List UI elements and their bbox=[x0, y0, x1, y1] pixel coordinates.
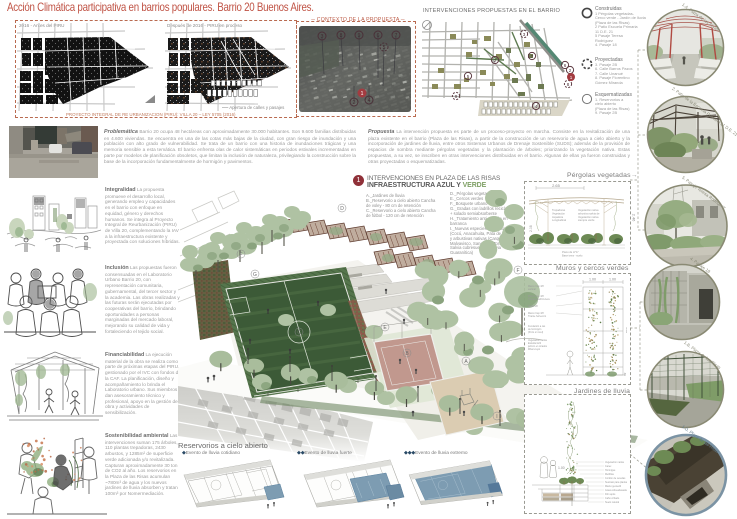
svg-text:C: C bbox=[297, 330, 301, 336]
svg-text:Vegetación nativa: Vegetación nativa bbox=[578, 215, 599, 219]
svg-text:arbustiva salvia de: arbustiva salvia de bbox=[578, 211, 600, 215]
svg-text:siempre verde: siempre verde bbox=[578, 218, 595, 222]
svg-text:6: 6 bbox=[377, 33, 380, 39]
svg-text:4: 4 bbox=[368, 98, 371, 104]
svg-text:Manto geotextil: Manto geotextil bbox=[605, 485, 622, 488]
svg-text:D: D bbox=[340, 206, 344, 212]
svg-text:7: 7 bbox=[531, 54, 534, 59]
svg-text:6: 6 bbox=[564, 63, 567, 68]
svg-text:1.00: 1.00 bbox=[609, 278, 616, 282]
svg-text:2: 2 bbox=[569, 68, 572, 73]
svg-text:2.65: 2.65 bbox=[552, 183, 561, 188]
svg-text:9: 9 bbox=[358, 33, 361, 39]
svg-text:2.08: 2.08 bbox=[529, 225, 533, 232]
svg-text:Base terra - suelo: Base terra - suelo bbox=[562, 253, 583, 257]
svg-text:2: 2 bbox=[353, 100, 356, 106]
svg-text:1: 1 bbox=[361, 91, 364, 97]
svg-text:Longitudinal: Longitudinal bbox=[552, 218, 566, 222]
svg-text:1.00: 1.00 bbox=[589, 278, 596, 282]
svg-text:Carex: Carex bbox=[605, 465, 612, 468]
svg-text:2: 2 bbox=[494, 58, 497, 63]
svg-text:8: 8 bbox=[340, 33, 343, 39]
svg-text:4: 4 bbox=[535, 104, 538, 109]
svg-text:Piano de H°A°: Piano de H°A° bbox=[562, 250, 579, 254]
svg-text:(Pozo s/ nivel): (Pozo s/ nivel) bbox=[528, 331, 543, 334]
svg-text:trepadora: trepadora bbox=[552, 215, 564, 219]
svg-text:Melífilas: Melífilas bbox=[605, 473, 615, 476]
svg-text:Sustrato para plantas: Sustrato para plantas bbox=[605, 481, 627, 484]
svg-text:Tirante hortecont: Tirante hortecont bbox=[528, 315, 546, 318]
svg-text:8: 8 bbox=[567, 82, 570, 87]
svg-text:vertical: vertical bbox=[528, 288, 536, 291]
svg-text:G: G bbox=[253, 272, 257, 278]
svg-text:5: 5 bbox=[383, 45, 386, 51]
svg-text:Trepadoras: Trepadoras bbox=[552, 208, 566, 212]
svg-text:Vegetación nativa: Vegetación nativa bbox=[578, 208, 599, 212]
svg-text:Suelo natural: Suelo natural bbox=[605, 501, 620, 504]
svg-text:Vegetación: Vegetación bbox=[552, 211, 565, 215]
svg-text:Cordón de veredas: Cordón de veredas bbox=[605, 477, 626, 480]
svg-text:Hormigué: Hormigué bbox=[605, 469, 616, 472]
svg-text:4.00: 4.00 bbox=[625, 327, 627, 333]
svg-text:Film após: Film após bbox=[605, 493, 616, 496]
svg-text:Vegetación nativa: Vegetación nativa bbox=[605, 461, 625, 464]
svg-text:5: 5 bbox=[467, 74, 470, 79]
svg-text:Mburucuyá: Mburucuyá bbox=[528, 348, 540, 351]
svg-text:Caño cribado: Caño cribado bbox=[605, 497, 620, 500]
svg-text:1: 1 bbox=[570, 75, 573, 80]
svg-text:3: 3 bbox=[523, 32, 526, 37]
svg-text:1.00: 1.00 bbox=[558, 466, 565, 470]
svg-text:3: 3 bbox=[321, 34, 324, 40]
svg-text:Malla 5/8: Malla 5/8 bbox=[528, 305, 538, 308]
svg-text:Grava silícea/lavada: Grava silícea/lavada bbox=[605, 489, 627, 492]
svg-text:9: 9 bbox=[455, 94, 458, 99]
svg-text:I: I bbox=[496, 414, 497, 420]
svg-text:F: F bbox=[239, 252, 242, 258]
svg-text:7: 7 bbox=[395, 33, 398, 39]
svg-text:Transversal/Cruzera: Transversal/Cruzera bbox=[528, 298, 550, 301]
svg-text:.60: .60 bbox=[623, 372, 627, 376]
